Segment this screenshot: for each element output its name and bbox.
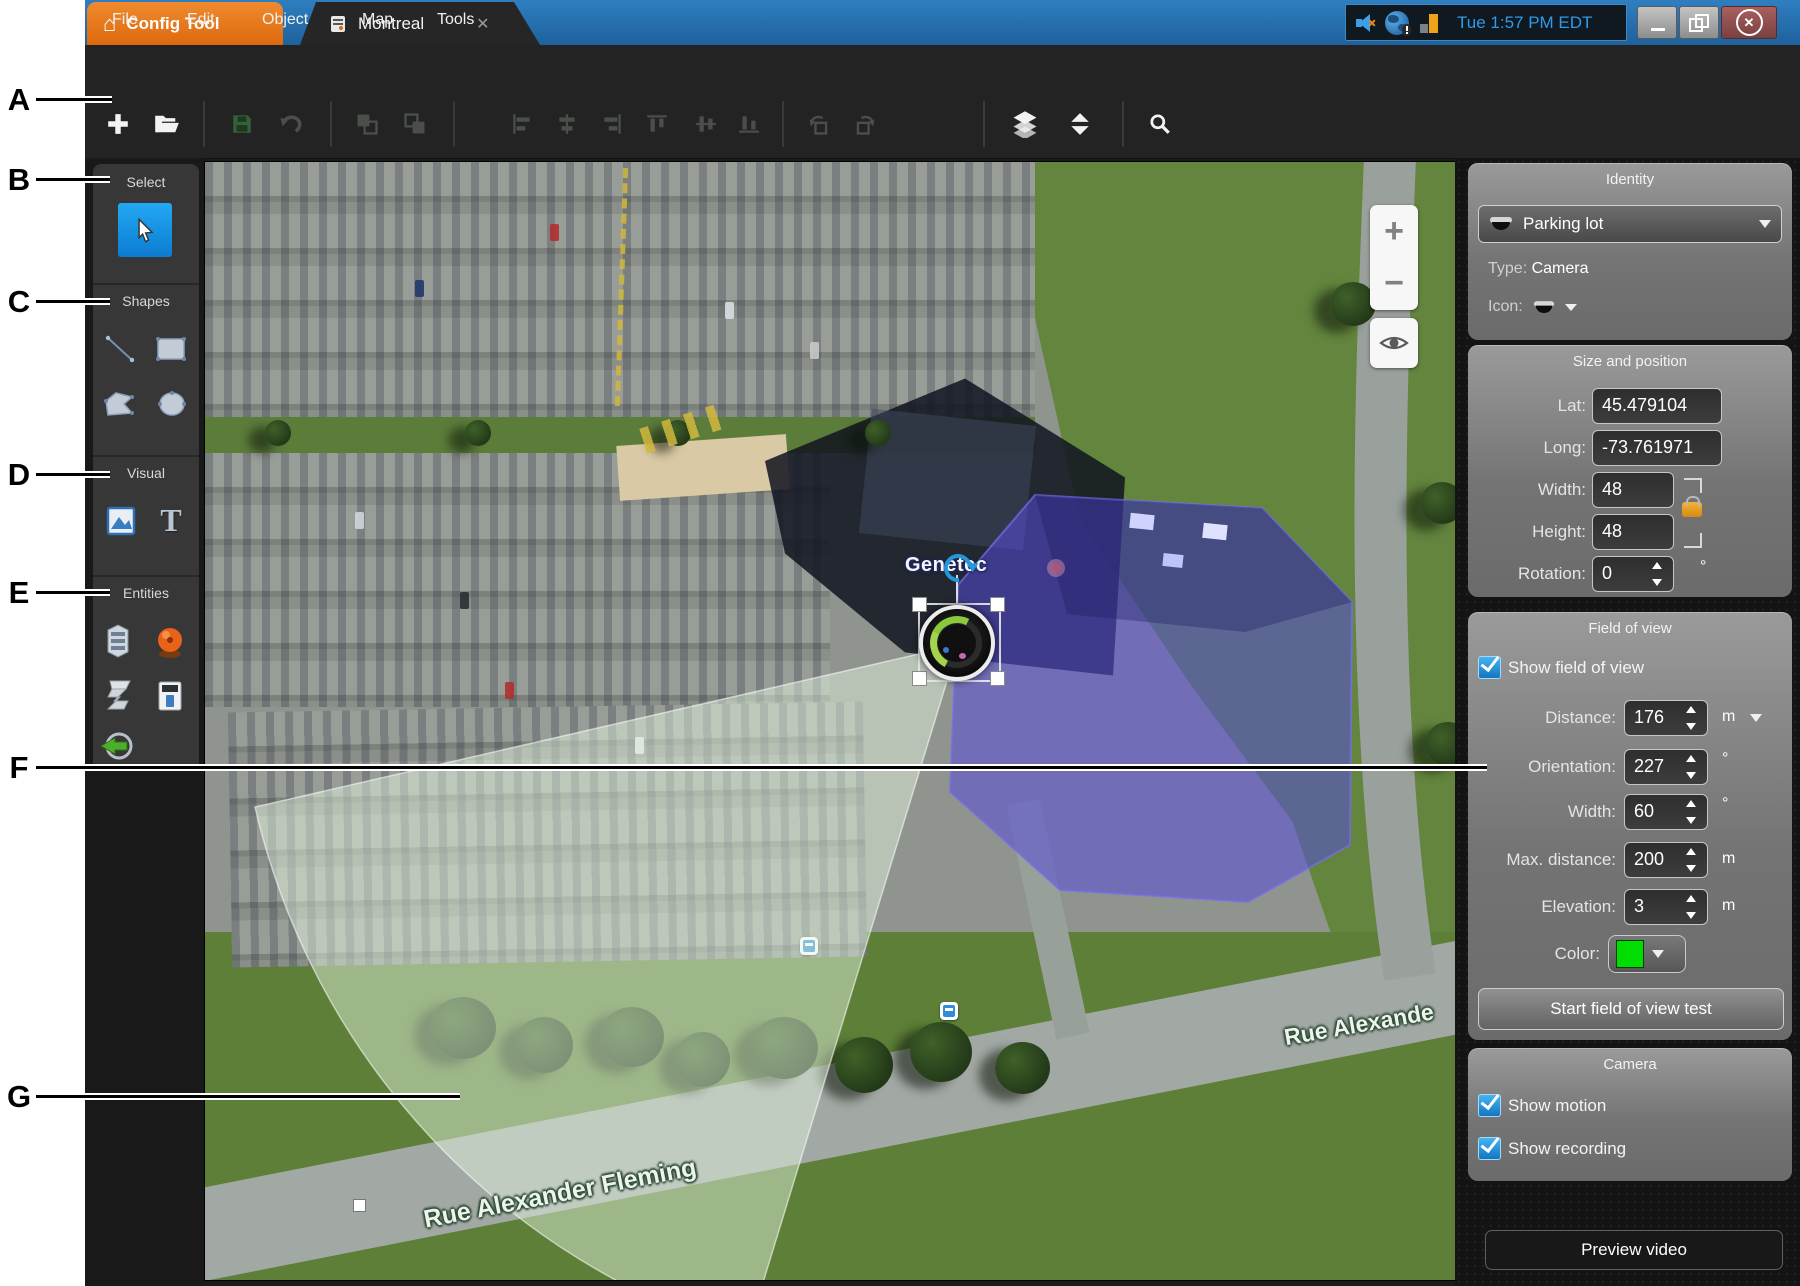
toolbar-separator <box>983 101 985 147</box>
distance-label: Distance: <box>1468 708 1616 728</box>
selection-handle[interactable] <box>990 597 1005 612</box>
camera-green-arc <box>923 609 991 677</box>
toolbar <box>85 89 1800 159</box>
polygon-tool[interactable] <box>101 388 137 420</box>
map-canvas[interactable]: Genetec Rue Alexander Fleming Rue Alexan… <box>205 162 1455 1280</box>
selection-handle[interactable] <box>912 671 927 686</box>
show-motion-label: Show motion <box>1508 1096 1606 1116</box>
close-icon: ✕ <box>1736 9 1763 36</box>
orientation-label: Orientation: <box>1468 757 1616 777</box>
cursor-icon <box>132 217 158 243</box>
clock: Tue 1:57 PM EDT <box>1457 13 1592 33</box>
text-tool[interactable]: T <box>154 502 188 538</box>
eye-icon <box>1379 332 1409 354</box>
door-entity-tool[interactable] <box>155 679 185 713</box>
sidebar-divider <box>93 283 199 285</box>
chevron-down-icon <box>1652 950 1664 958</box>
rotation-label: Rotation: <box>1468 564 1586 584</box>
show-recording-label: Show recording <box>1508 1139 1626 1159</box>
zoom-out-button[interactable]: − <box>1370 257 1418 309</box>
menu-map[interactable]: Map <box>362 11 393 29</box>
camera-dot <box>959 653 966 659</box>
annotation-line-b <box>36 176 110 183</box>
annotation-line-e <box>36 589 110 596</box>
map-zoom-control: + − <box>1370 205 1418 310</box>
toolbar-separator <box>330 101 332 147</box>
annotation-line-d <box>36 471 110 478</box>
aspect-link-bracket <box>1684 533 1702 548</box>
camera-entity[interactable] <box>919 605 995 681</box>
entity-type-row: Type: Camera <box>1488 260 1589 278</box>
start-fov-test-button[interactable]: Start field of view test <box>1478 988 1784 1030</box>
lat-label: Lat: <box>1468 396 1586 416</box>
max-distance-label: Max. distance: <box>1448 850 1616 870</box>
elevation-unit: m <box>1722 897 1735 915</box>
layers-icon[interactable] <box>1003 102 1047 146</box>
restore-button[interactable] <box>1679 6 1719 39</box>
annotation-letter-c: C <box>4 284 34 320</box>
search-icon[interactable] <box>1138 102 1182 146</box>
show-recording-checkbox[interactable] <box>1478 1137 1501 1160</box>
annotation-line-f <box>36 764 1487 771</box>
max-distance-unit: m <box>1722 850 1735 868</box>
show-fov-checkbox[interactable] <box>1478 656 1501 679</box>
rotate-right-icon[interactable] <box>843 102 887 146</box>
align-center-horizontal-icon[interactable] <box>545 102 589 146</box>
undo-icon[interactable] <box>269 102 313 146</box>
align-left-icon[interactable] <box>500 102 544 146</box>
menu-tools[interactable]: Tools <box>437 11 474 29</box>
height-input[interactable]: 48 <box>1592 514 1674 550</box>
entity-dropdown-value: Parking lot <box>1523 214 1603 234</box>
annotation-letter-b: B <box>4 162 34 198</box>
align-top-icon[interactable] <box>635 102 679 146</box>
align-right-icon[interactable] <box>590 102 634 146</box>
annotation-letter-f: F <box>4 750 34 786</box>
color-label: Color: <box>1468 944 1600 964</box>
annotation-letter-e: E <box>4 575 34 611</box>
toolbar-separator <box>453 101 455 147</box>
menu-object[interactable]: Object <box>262 11 308 29</box>
entity-icon-row: Icon: <box>1488 298 1577 316</box>
identity-title: Identity <box>1468 171 1792 188</box>
tab-montreal[interactable]: Montreal ✕ <box>300 2 540 45</box>
fov-width-spinner[interactable] <box>1684 800 1698 824</box>
rotation-spinner[interactable] <box>1650 562 1664 586</box>
add-icon[interactable] <box>96 102 140 146</box>
ellipse-tool[interactable] <box>154 388 190 420</box>
sidebar-divider <box>93 575 199 577</box>
fov-range-handle[interactable] <box>353 1199 366 1212</box>
height-label: Height: <box>1468 522 1586 542</box>
chevron-down-icon[interactable] <box>1565 304 1577 311</box>
distance-unit: m <box>1722 708 1735 726</box>
selection-handle[interactable] <box>990 671 1005 686</box>
fov-width-label: Width: <box>1468 802 1616 822</box>
annotation-letter-d: D <box>4 457 34 493</box>
send-backward-icon[interactable] <box>393 102 437 146</box>
rectangle-tool[interactable] <box>153 334 189 364</box>
menu-file[interactable]: File <box>112 11 138 29</box>
network-globe-icon[interactable] <box>1385 11 1409 35</box>
rotation-unit: ° <box>1700 558 1706 576</box>
max-distance-spinner[interactable] <box>1684 848 1698 872</box>
aspect-link-bracket <box>1684 478 1702 493</box>
rotate-left-icon[interactable] <box>797 102 841 146</box>
selection-handle[interactable] <box>912 597 927 612</box>
fov-color-dropdown[interactable] <box>1608 935 1686 973</box>
annotation-letter-g: G <box>4 1079 34 1115</box>
show-fov-label: Show field of view <box>1508 658 1644 678</box>
close-button[interactable]: ✕ <box>1721 6 1777 39</box>
minimize-button[interactable] <box>1637 6 1677 39</box>
tab-close-icon[interactable]: ✕ <box>476 14 489 34</box>
size-position-title: Size and position <box>1468 353 1792 370</box>
align-bottom-icon[interactable] <box>727 102 771 146</box>
macro-entity-tool[interactable] <box>101 676 137 714</box>
line-tool[interactable] <box>102 332 138 366</box>
save-icon[interactable] <box>220 102 264 146</box>
map-document-icon <box>328 14 348 34</box>
sidebar-divider <box>93 455 199 457</box>
show-motion-checkbox[interactable] <box>1478 1094 1501 1117</box>
field-of-view-overlay <box>205 162 1455 1280</box>
signal-bars-icon[interactable] <box>1418 13 1440 33</box>
annotation-line-a <box>36 96 112 103</box>
distance-spinner[interactable] <box>1684 706 1698 730</box>
dome-camera-icon[interactable] <box>1533 300 1555 315</box>
orientation-spinner[interactable] <box>1684 755 1698 779</box>
annotation-letter-a: A <box>4 82 34 118</box>
system-tray: Tue 1:57 PM EDT <box>1345 4 1627 41</box>
width-label: Width: <box>1468 480 1586 500</box>
annotation-line-g <box>36 1093 460 1100</box>
elevation-label: Elevation: <box>1468 897 1616 917</box>
dome-camera-icon <box>1489 216 1513 232</box>
long-input[interactable]: -73.761971 <box>1592 430 1722 466</box>
camera-dot <box>943 647 949 653</box>
width-input[interactable]: 48 <box>1592 472 1674 508</box>
type-label: Type: <box>1488 260 1527 277</box>
toolbar-separator <box>782 101 784 147</box>
area-entity-tool[interactable] <box>101 621 135 659</box>
bring-forward-icon[interactable] <box>345 102 389 146</box>
elevation-spinner[interactable] <box>1684 895 1698 919</box>
menu-edit[interactable]: Edit <box>187 11 215 29</box>
camera-title: Camera <box>1468 1056 1792 1073</box>
preview-video-button[interactable]: Preview video <box>1485 1230 1783 1270</box>
align-middle-vertical-icon[interactable] <box>684 102 728 146</box>
toolbar-separator <box>203 101 205 147</box>
open-icon[interactable] <box>145 102 189 146</box>
place-marker[interactable] <box>1047 559 1065 577</box>
chevron-down-icon <box>1759 220 1771 228</box>
unit-dropdown-icon[interactable] <box>1750 714 1762 722</box>
long-label: Long: <box>1468 438 1586 458</box>
fov-width-unit: ° <box>1722 795 1728 813</box>
lock-icon[interactable] <box>1682 502 1702 517</box>
annotation-line-c <box>36 298 110 305</box>
orientation-unit: ° <box>1722 750 1728 768</box>
stack-order-icon[interactable] <box>1058 102 1102 146</box>
toolbar-separator <box>1122 101 1124 147</box>
image-tool[interactable] <box>104 504 138 538</box>
select-tool[interactable] <box>118 203 172 257</box>
color-swatch <box>1616 940 1644 968</box>
input-entity-tool[interactable] <box>98 731 136 761</box>
alarm-entity-tool[interactable] <box>153 624 187 660</box>
lat-input[interactable]: 45.479104 <box>1592 388 1722 424</box>
speaker-muted-icon[interactable] <box>1356 14 1376 32</box>
field-of-view-title: Field of view <box>1468 620 1792 637</box>
menu-bar <box>85 45 1800 89</box>
entity-dropdown[interactable]: Parking lot <box>1478 205 1782 243</box>
visibility-button[interactable] <box>1370 318 1418 368</box>
screenshot-root: ⌂ Config Tool Montreal ✕ Tue 1:57 PM EDT… <box>0 0 1800 1286</box>
zoom-in-button[interactable]: + <box>1370 205 1418 257</box>
icon-label: Icon: <box>1488 298 1523 316</box>
type-value: Camera <box>1532 260 1589 277</box>
